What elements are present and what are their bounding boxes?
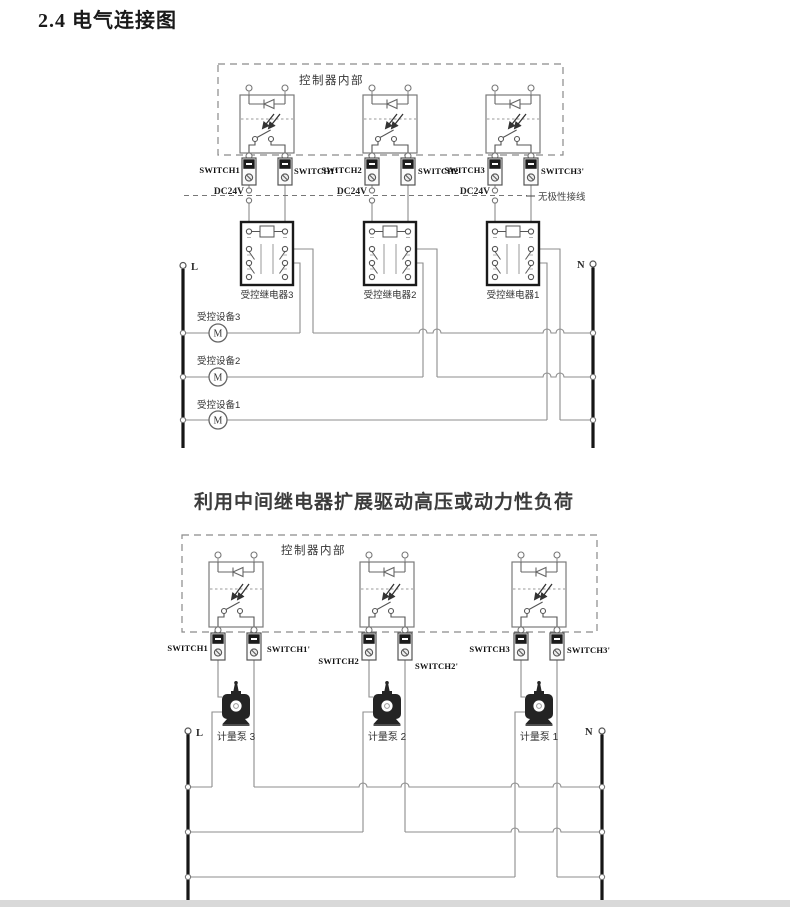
phase-label: L [191, 262, 198, 273]
controller-label: 控制器内部 [281, 543, 346, 557]
neutral-label: N [585, 727, 593, 738]
terminal-block-icon [401, 158, 415, 185]
relay-base-icon [364, 222, 416, 285]
l-terminal [185, 728, 191, 734]
pump-label: 计量泵 2 [368, 730, 407, 743]
switch-label: SWITCH3 [444, 165, 485, 175]
terminal-block-icon [398, 633, 412, 660]
ssr-module-icon [209, 552, 263, 636]
switch-label: SWITCH2 [321, 165, 362, 175]
terminal-block-icon [242, 158, 256, 185]
controller-label: 控制器内部 [299, 73, 364, 87]
n-terminal [599, 728, 605, 734]
terminal-block-icon [278, 158, 292, 185]
switch-label: SWITCH3' [541, 166, 584, 176]
pump-icon [525, 681, 553, 726]
pump-icon [373, 681, 401, 726]
dc24v-label: DC24V [214, 187, 244, 197]
switch-label: SWITCH2' [415, 661, 458, 671]
switch-label: SWITCH2 [318, 656, 359, 666]
pump-icon [222, 681, 250, 726]
wiring [183, 185, 593, 420]
device-label: 受控设备3 [197, 311, 240, 323]
ssr-module-icon [486, 85, 540, 163]
relay-label: 受控继电器2 [364, 289, 417, 301]
neutral-label: N [577, 260, 585, 271]
motor-letter: M [214, 416, 223, 427]
switch-label: SWITCH1 [167, 643, 208, 653]
relay-label: 受控继电器1 [487, 289, 540, 301]
document-page: 2.4 电气连接图 控制器内部 [0, 0, 790, 907]
l-terminal [180, 263, 186, 269]
terminal-block-icon [365, 158, 379, 185]
pump-label: 计量泵 3 [217, 730, 256, 743]
terminal-block-icon [211, 633, 225, 660]
diagram-relay-outputs: 控制器内部 [180, 64, 596, 448]
schematic-canvas: 2.4 电气连接图 控制器内部 [0, 0, 790, 907]
terminal-block-icon [488, 158, 502, 185]
terminal-block-icon [247, 633, 261, 660]
switch-label: SWITCH3 [469, 644, 510, 654]
pump-label: 计量泵 1 [520, 730, 559, 743]
relay-base-icon [241, 222, 293, 285]
relay-base-icon [487, 222, 539, 285]
terminal-block-icon [514, 633, 528, 660]
motor-letter: M [214, 329, 223, 340]
ssr-module-icon [512, 552, 566, 636]
page-edge-strip [0, 900, 790, 907]
switch-label: SWITCH1 [199, 165, 240, 175]
ssr-module-icon [240, 85, 294, 163]
device-label: 受控设备1 [197, 399, 240, 411]
ssr-module-icon [360, 552, 414, 636]
section-caption: 利用中间继电器扩展驱动高压或动力性负荷 [194, 490, 574, 513]
switch-label: SWITCH1' [267, 644, 310, 654]
terminal-block-icon [550, 633, 564, 660]
dc24v-label: DC24V [460, 187, 490, 197]
ssr-module-icon [363, 85, 417, 163]
diagram-metering-pumps: 控制器内部 [167, 535, 610, 903]
phase-label: L [196, 728, 203, 739]
switch-label: SWITCH3' [567, 645, 610, 655]
relay-label: 受控继电器3 [241, 289, 294, 301]
polarity-note: 无极性接线 [538, 191, 586, 203]
motor-letter: M [214, 373, 223, 384]
n-terminal [590, 261, 596, 267]
terminal-block-icon [362, 633, 376, 660]
page-title: 2.4 电气连接图 [38, 8, 177, 32]
motors: M M M [209, 324, 227, 429]
terminal-block-icon [524, 158, 538, 185]
dc24v-label: DC24V [337, 187, 367, 197]
device-label: 受控设备2 [197, 355, 240, 367]
